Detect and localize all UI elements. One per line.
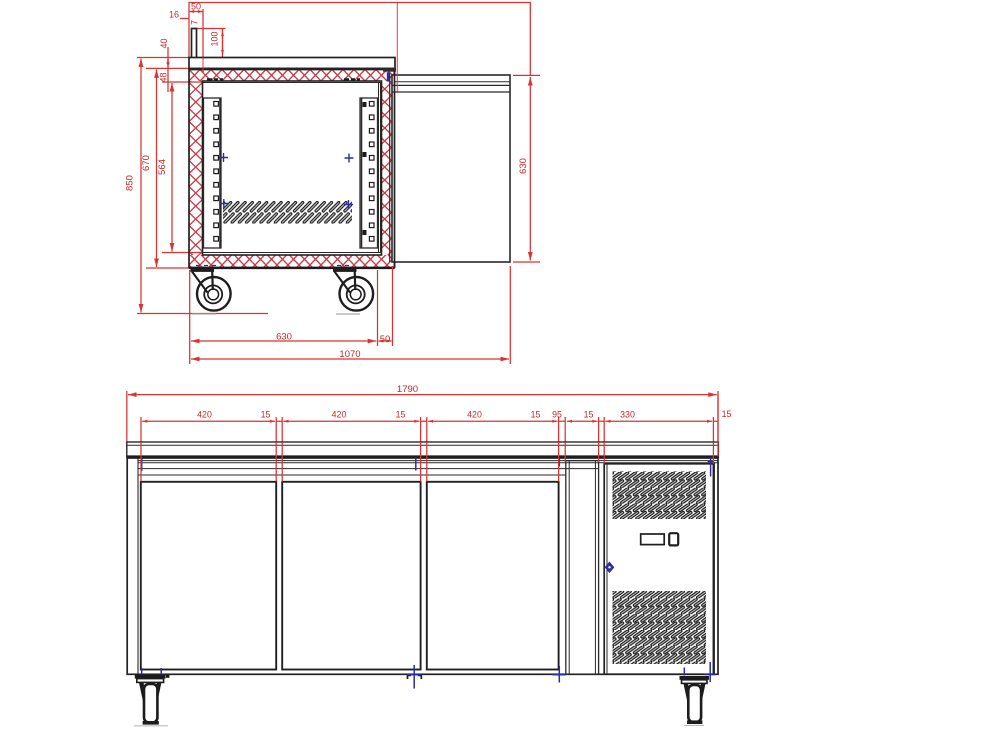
svg-text:100: 100 [210, 31, 220, 46]
svg-text:1070: 1070 [339, 349, 360, 360]
svg-text:7: 7 [190, 20, 200, 25]
svg-text:15: 15 [584, 410, 594, 420]
svg-text:420: 420 [467, 410, 482, 420]
svg-text:670: 670 [141, 155, 152, 171]
svg-text:50: 50 [380, 334, 391, 345]
svg-text:15: 15 [531, 410, 541, 420]
svg-text:850: 850 [125, 175, 136, 191]
svg-text:564: 564 [157, 159, 168, 175]
svg-text:15: 15 [261, 410, 271, 420]
svg-text:15: 15 [722, 409, 732, 419]
svg-text:1790: 1790 [397, 384, 418, 395]
svg-text:420: 420 [332, 410, 347, 420]
svg-text:48: 48 [159, 72, 169, 82]
svg-text:630: 630 [276, 332, 292, 343]
svg-text:330: 330 [620, 410, 635, 420]
svg-text:16: 16 [169, 10, 179, 20]
svg-text:15: 15 [396, 410, 406, 420]
svg-text:630: 630 [518, 158, 529, 174]
svg-text:95: 95 [552, 410, 562, 420]
svg-text:40: 40 [159, 38, 169, 48]
svg-text:50: 50 [191, 2, 201, 12]
svg-text:420: 420 [197, 410, 212, 420]
